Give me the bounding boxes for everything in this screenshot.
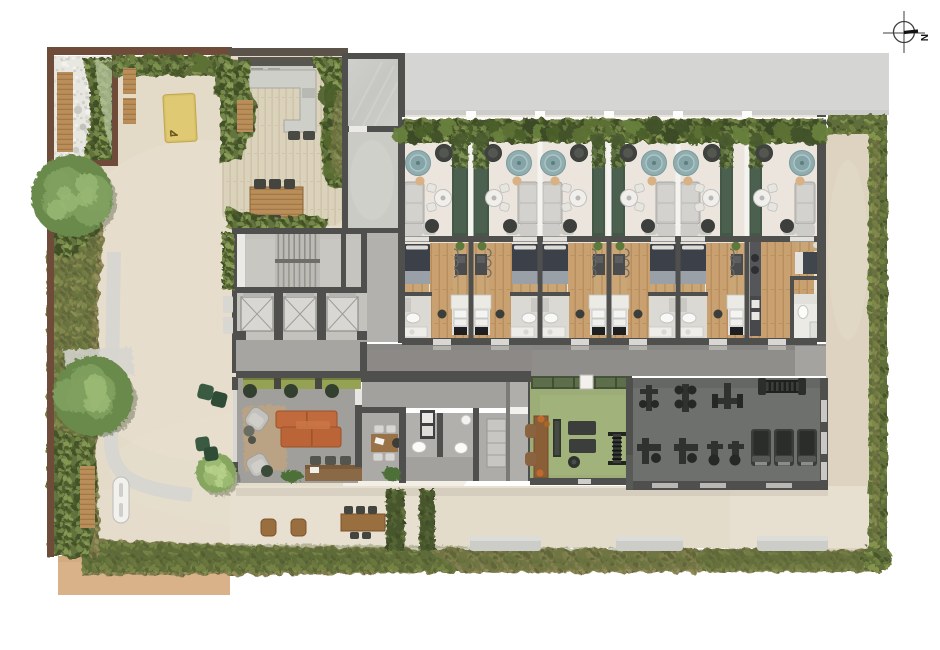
- svg-text:N: N: [918, 34, 929, 41]
